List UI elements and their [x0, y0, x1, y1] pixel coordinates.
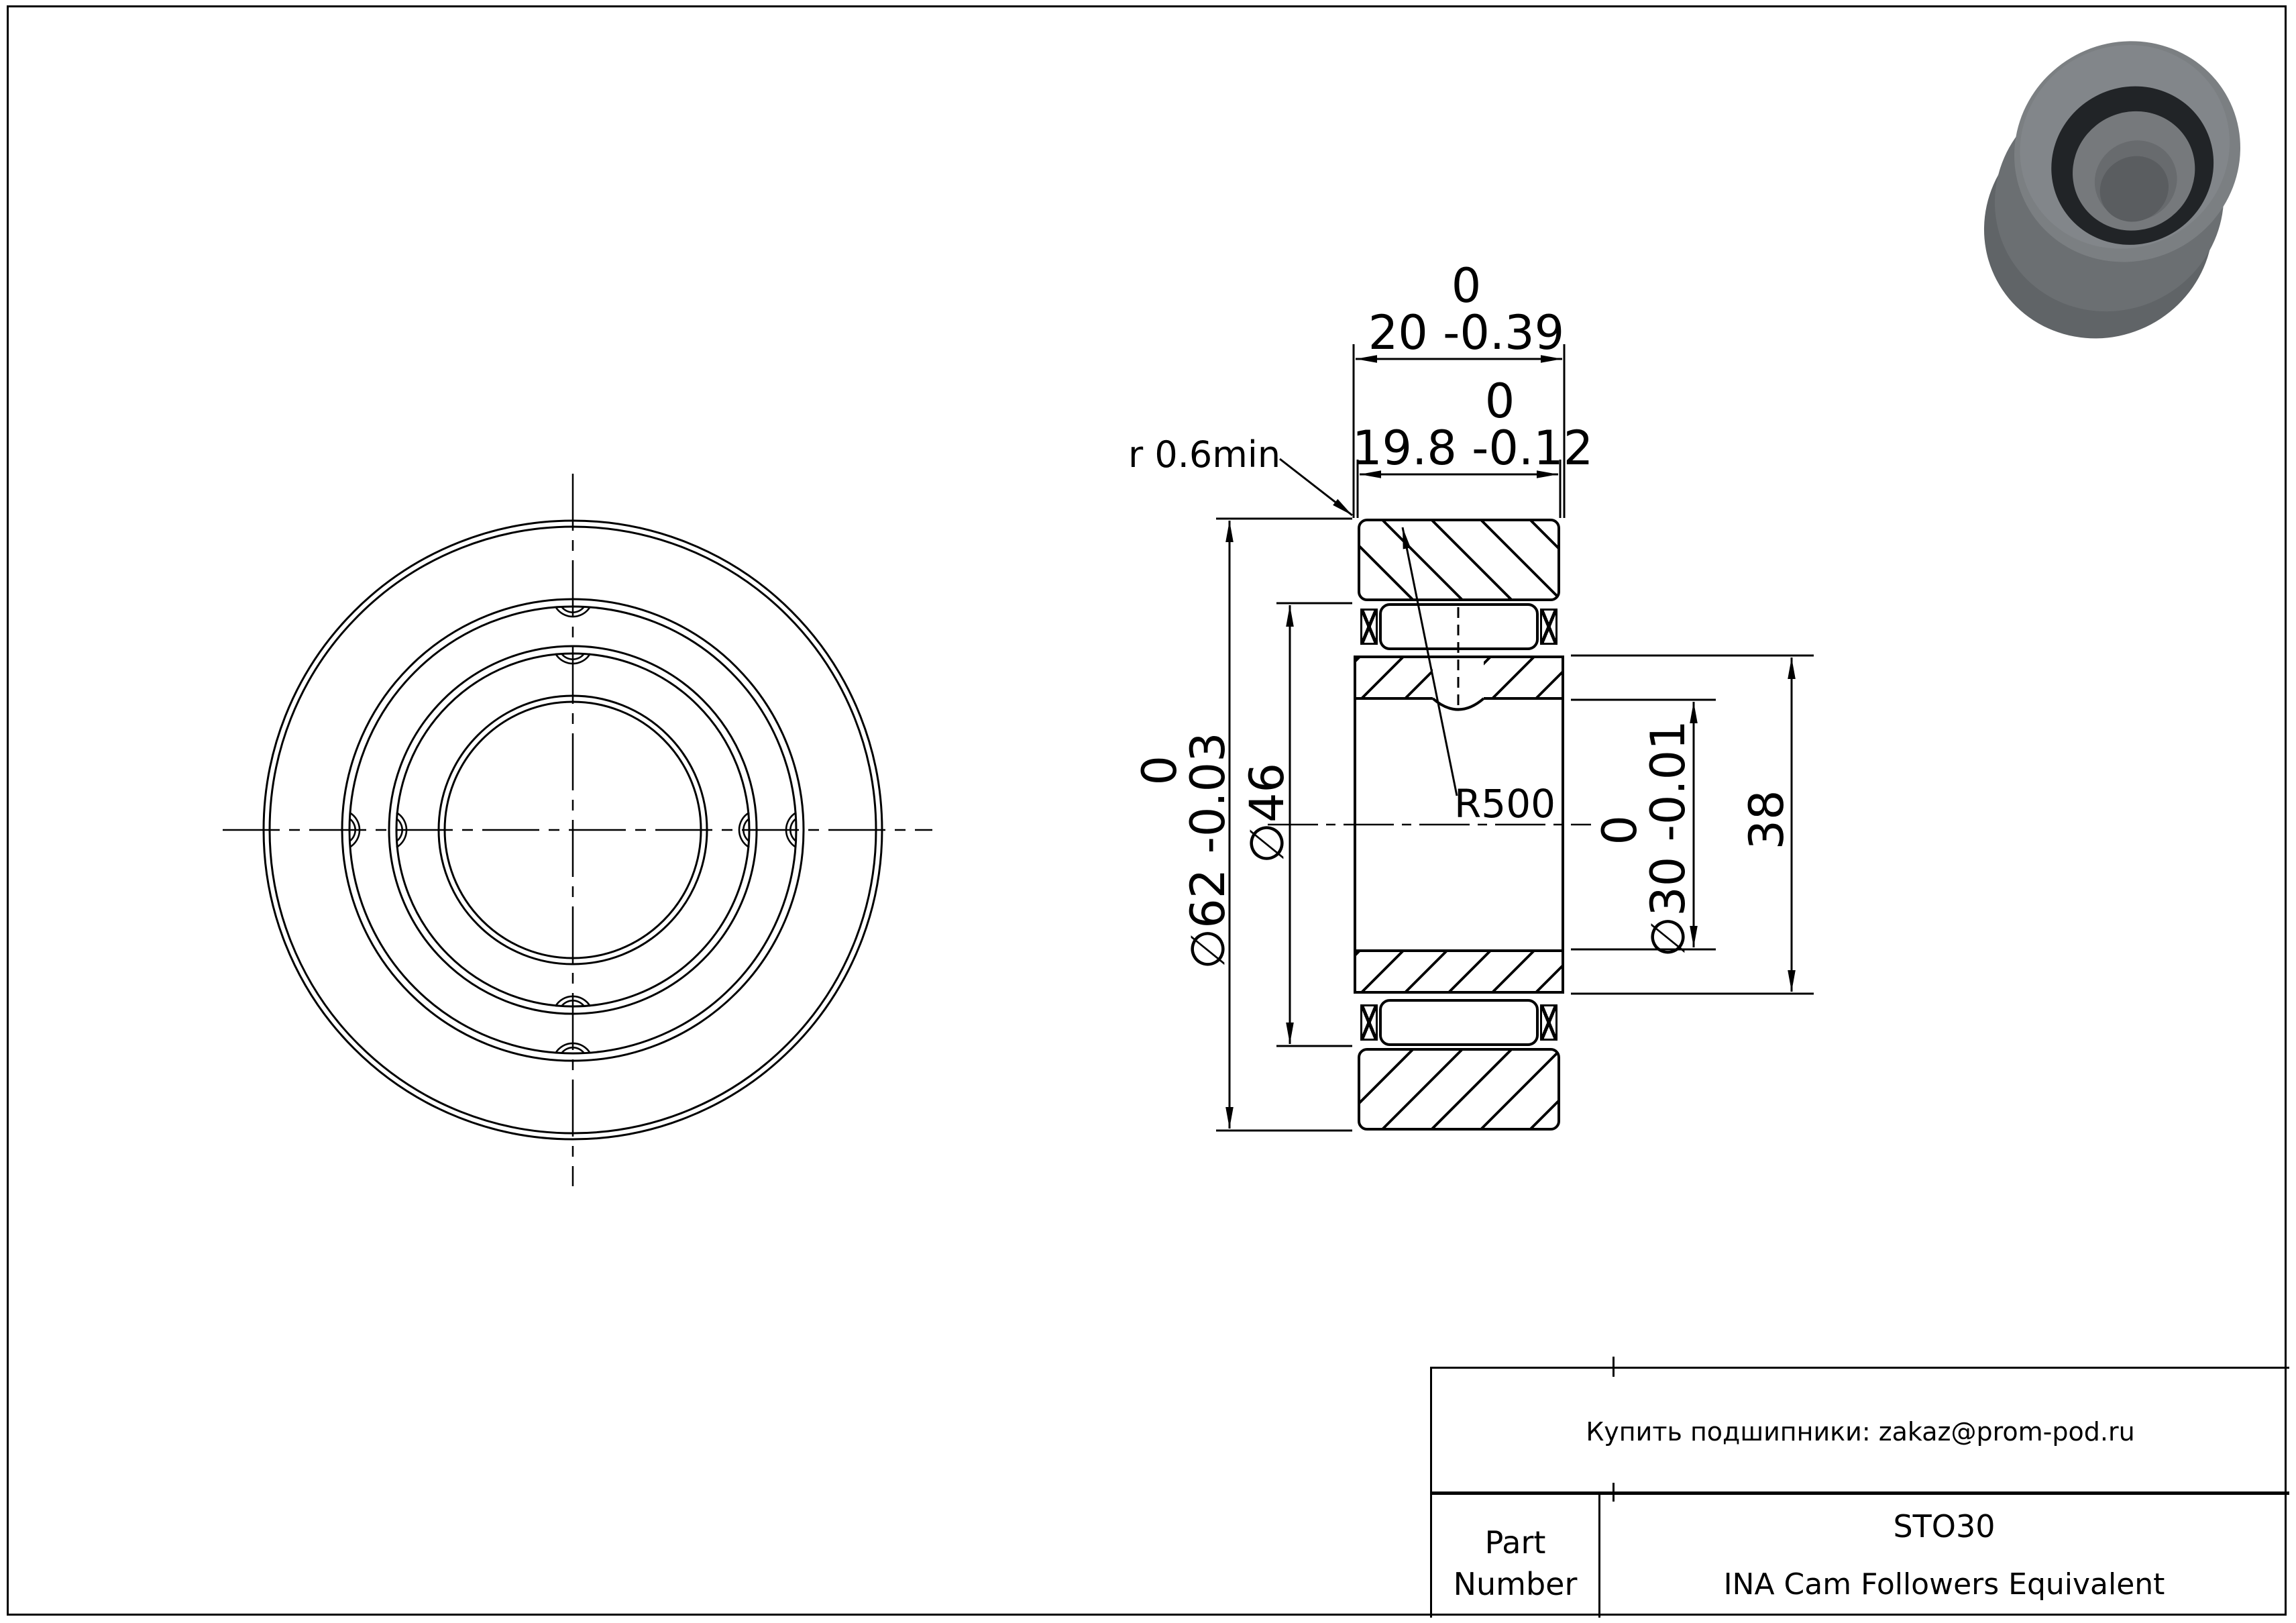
dimension-lines — [1229, 359, 1792, 1129]
leader-edge-radius — [1280, 459, 1352, 515]
bearing-3d-render — [1921, 1, 2296, 378]
leader-crown-radius — [1403, 527, 1457, 796]
extension-lines — [1216, 344, 1814, 1131]
drawing-page: { "labels": { "width_outer_upper": "0", … — [0, 0, 2296, 1623]
line-work-layer — [0, 0, 2296, 1623]
